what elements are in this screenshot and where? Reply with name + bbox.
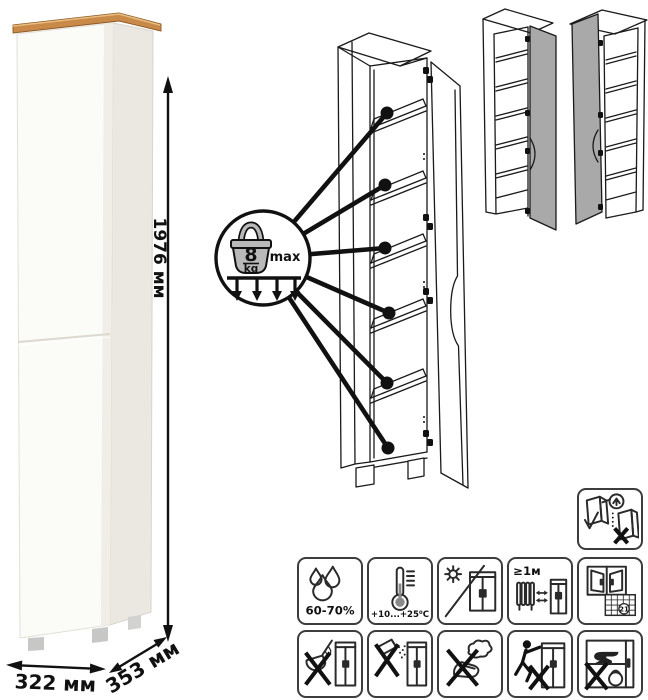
cabinet-foot: [92, 627, 108, 643]
variant-door-right: [483, 9, 556, 230]
powder-dots: [398, 645, 406, 658]
shelf-load-icon: 8 kg max: [216, 211, 310, 305]
wall-mount-icon: [577, 488, 643, 550]
variant-shelves: [496, 50, 527, 198]
x-mark: [530, 666, 549, 689]
cabinet-foot: [128, 615, 141, 630]
calendar-day: 21: [619, 604, 629, 613]
heat-distance-label: ≥1м: [513, 564, 540, 578]
no-direct-sunlight-icon: [437, 557, 503, 625]
x-mark: [586, 663, 608, 689]
product-photo: [13, 13, 161, 651]
variant-door-left: [570, 10, 647, 224]
anvil-glyph: [593, 652, 618, 663]
load-qualifier: max: [270, 250, 301, 265]
open-window-glyph: [588, 567, 626, 595]
person-head: [523, 640, 531, 648]
variant-shelves: [606, 52, 636, 200]
no-liquids-icon: [297, 630, 363, 698]
cabinet-glyph: [542, 643, 564, 687]
shelf-pointer-dots: [379, 107, 396, 455]
height-label: 1976 мм: [149, 217, 169, 298]
no-wet-cloth-icon: [437, 630, 503, 698]
product-sheet: { "dimensions": { "height": "1976 мм", "…: [0, 0, 648, 700]
width-dimension: 322 мм: [5, 660, 106, 697]
cabinet-foot: [28, 637, 44, 651]
no-powder-icon: [367, 630, 433, 698]
care-icons-grid: 60-70% +10...+25⁰C: [297, 557, 643, 698]
calendar-glyph: 21: [605, 595, 635, 616]
door-hinges: [423, 67, 433, 446]
temperature-label: +10...+25⁰C: [371, 610, 429, 620]
shelf: [371, 299, 426, 333]
humidity-icon: 60-70%: [297, 557, 363, 625]
cabinet-glyph: [407, 642, 426, 685]
check-mark: [585, 513, 598, 529]
ventilation-icon: 21: [577, 557, 643, 625]
humidity-label: 60-70%: [305, 603, 354, 617]
cabinet-front-door: [17, 23, 113, 638]
variant-door-panel: [530, 26, 556, 230]
width-label: 322 мм: [14, 669, 96, 697]
open-door: [431, 62, 468, 488]
cabinet-glyph: [336, 642, 356, 685]
temperature-icon: +10...+25⁰C: [367, 557, 433, 625]
load-unit: kg: [244, 263, 259, 275]
cabinet-side-panel: [110, 23, 153, 625]
shelf: [371, 99, 426, 133]
cabinet-glyph: [551, 580, 566, 614]
radiator-glyph: [517, 583, 534, 610]
depth-label: 353 мм: [101, 636, 183, 698]
depth-dimension: 353 мм: [101, 636, 183, 698]
arrowhead-up: [163, 76, 173, 93]
open-cabinet-drawing: [338, 33, 468, 488]
heat-distance-icon: ≥1м: [507, 557, 573, 625]
x-mark: [615, 528, 628, 543]
no-overload-icon: [577, 630, 643, 698]
variant-door-panel: [572, 14, 602, 224]
no-dragging-icon: [507, 630, 573, 698]
sun-glyph: [445, 566, 461, 582]
double-arrows: [536, 591, 548, 603]
x-mark: [376, 644, 398, 676]
dotted-guide: [612, 513, 614, 527]
kettlebell-glyph: [609, 671, 622, 686]
